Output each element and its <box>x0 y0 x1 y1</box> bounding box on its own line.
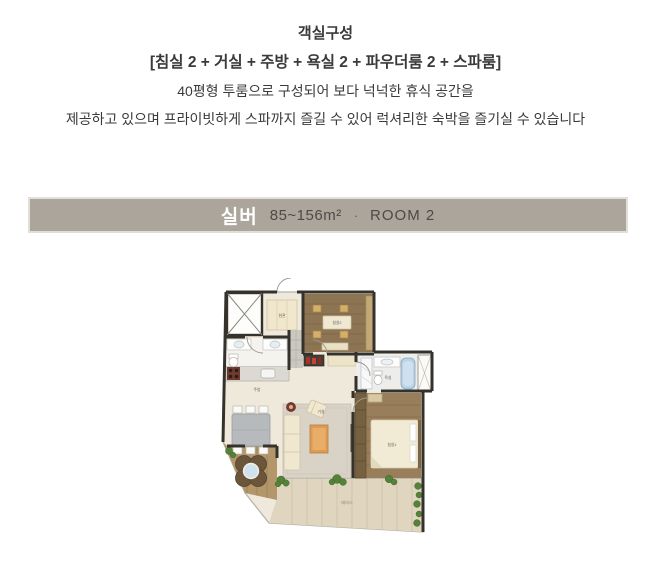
room-count: ROOM 2 <box>370 207 435 224</box>
room-composition-text: [침실 2 + 거실 + 주방 + 욕실 2 + 파우더룸 2 + 스파룸] <box>0 50 651 72</box>
elevator <box>227 293 262 335</box>
sofa <box>284 415 300 470</box>
terrace-label: 테라스 <box>341 499 353 506</box>
bedroom1: 침실1 <box>355 393 421 478</box>
room-type-name: 실버 <box>221 202 258 229</box>
bathroom: 욕실 <box>356 352 432 391</box>
room-description-line1: 40평형 투룸으로 구성되어 보다 넉넉한 휴식 공간을 <box>0 81 651 101</box>
bedroom1-label: 침실1 <box>387 442 396 447</box>
tray-center <box>289 405 293 409</box>
room-area: 85~156m² <box>270 207 342 224</box>
stove <box>227 367 240 380</box>
room-info-page: 객실구성 [침실 2 + 거실 + 주방 + 욕실 2 + 파우더룸 2 + 스… <box>0 0 651 577</box>
dresser <box>368 394 382 402</box>
living-room: 거실 <box>283 400 353 478</box>
bedroom2-label: 침실2 <box>332 320 341 325</box>
terrace: 테라스 <box>269 476 423 534</box>
kitchen-sink <box>261 369 275 378</box>
living-label: 거실 <box>318 409 325 414</box>
kitchen-label: 주방 <box>254 387 261 392</box>
bath-closet <box>418 355 431 391</box>
bedroom2: 침실2 <box>303 294 374 352</box>
section-title: 객실구성 <box>0 22 651 43</box>
toilet <box>229 357 238 367</box>
wardrobe <box>355 393 366 478</box>
spa-tub <box>236 456 267 487</box>
floorplan-svg: 테라스 <box>217 278 434 572</box>
room-description-line2: 제공하고 있으며 프라이빗하게 스파까지 즐길 수 있어 럭셔리한 숙박을 즐기… <box>0 109 651 129</box>
entrance-label: 현관 <box>279 313 286 318</box>
shoe-cabinet <box>304 355 324 366</box>
separator-dot: · <box>354 208 358 223</box>
toilet-2 <box>374 375 382 384</box>
hall-bench <box>328 355 356 366</box>
room-type-banner: 실버 85~156m² · ROOM 2 <box>28 197 628 233</box>
bathtub <box>401 358 415 389</box>
floorplan-image: 테라스 <box>217 278 434 572</box>
bathroom-label: 욕실 <box>385 375 392 380</box>
coffee-table <box>310 425 328 453</box>
shower <box>361 358 372 389</box>
